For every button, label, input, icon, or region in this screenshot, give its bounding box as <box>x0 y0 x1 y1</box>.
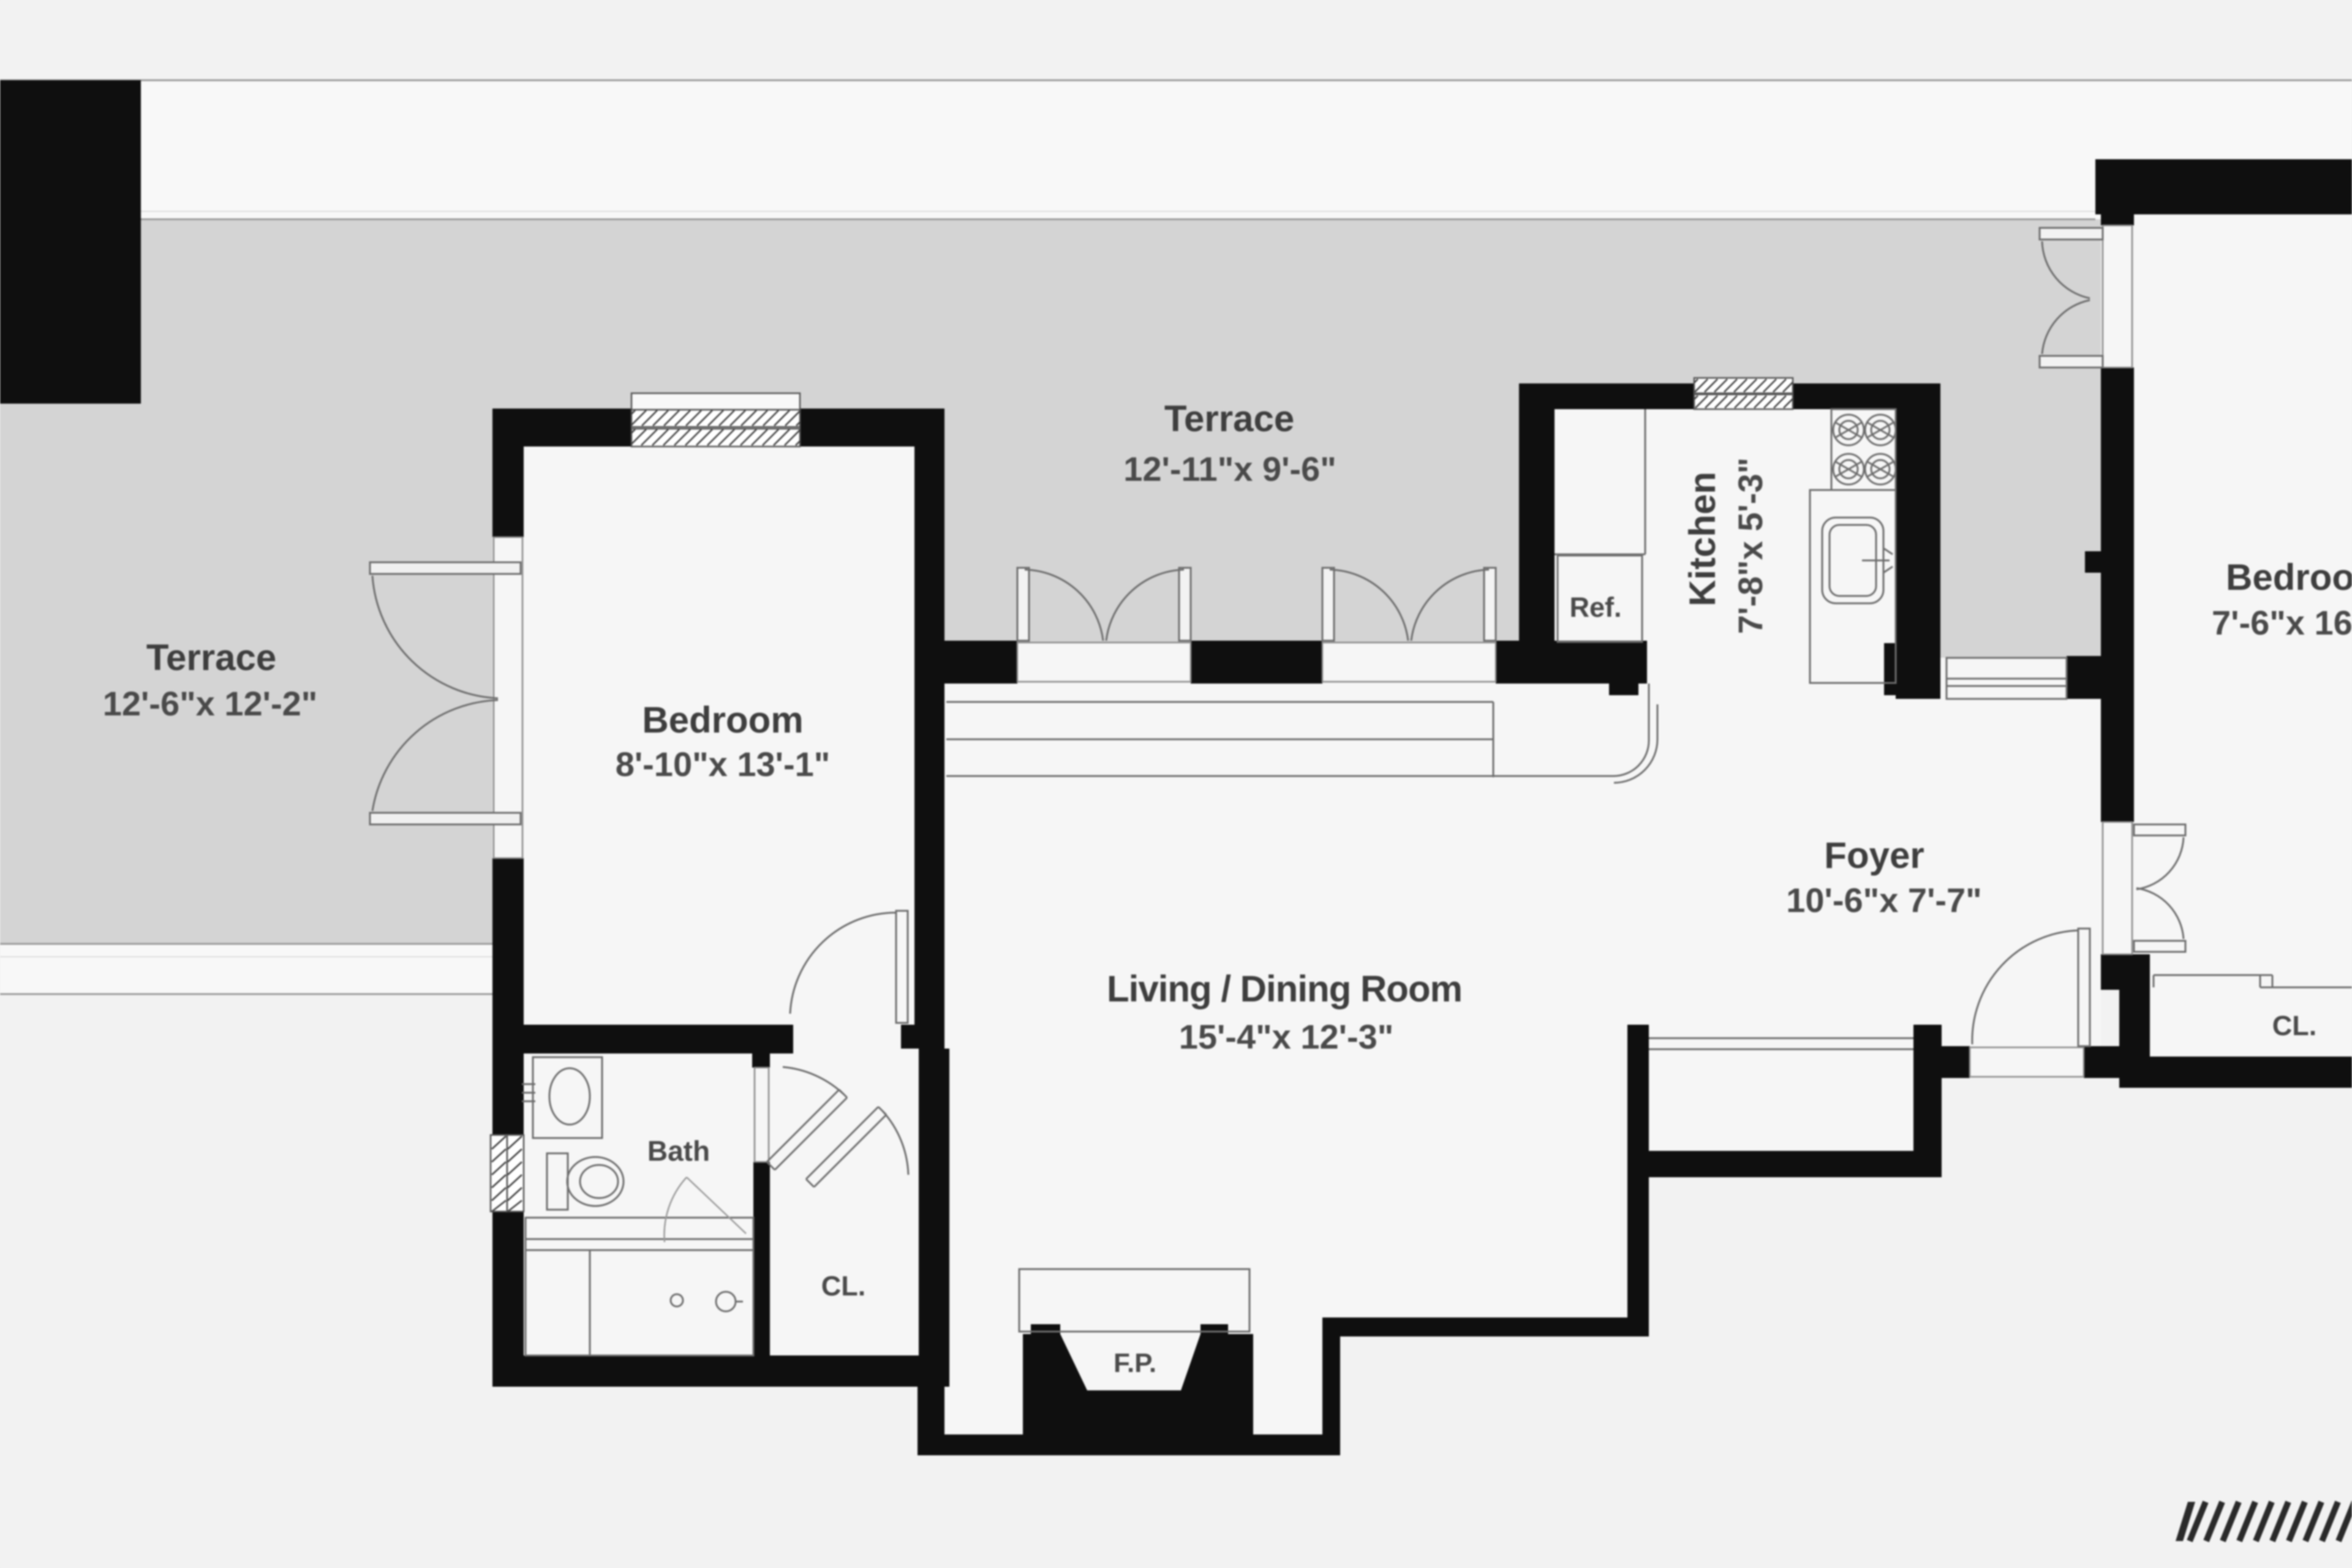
svg-text:Kitchen: Kitchen <box>1682 472 1723 606</box>
svg-text:10'-6"x 7'-7": 10'-6"x 7'-7" <box>1786 881 1981 919</box>
svg-text:12'-11"x 9'-6": 12'-11"x 9'-6" <box>1123 450 1336 488</box>
svg-text:Ref.: Ref. <box>1569 592 1621 623</box>
svg-text:CL.: CL. <box>2272 1010 2317 1041</box>
svg-text:Bedroom: Bedroom <box>2226 557 2352 598</box>
svg-text:Bath: Bath <box>647 1135 710 1167</box>
svg-text:Bedroom: Bedroom <box>642 699 803 741</box>
svg-text:7'-6"x 16'-4": 7'-6"x 16'-4" <box>2212 603 2352 642</box>
svg-text:15'-4"x 12'-3": 15'-4"x 12'-3" <box>1179 1017 1394 1056</box>
svg-text:Living / Dining Room: Living / Dining Room <box>1107 968 1462 1009</box>
svg-text:Terrace: Terrace <box>1164 398 1294 439</box>
svg-text:F.P.: F.P. <box>1114 1348 1156 1378</box>
svg-text:Terrace: Terrace <box>146 637 276 678</box>
svg-text:CL.: CL. <box>821 1270 866 1302</box>
svg-text:7'-8"x 5'-3": 7'-8"x 5'-3" <box>1731 458 1770 634</box>
svg-text:8'-10"x 13'-1": 8'-10"x 13'-1" <box>616 745 831 783</box>
svg-text:12'-6"x 12'-2": 12'-6"x 12'-2" <box>103 684 318 723</box>
svg-text:Foyer: Foyer <box>1824 835 1924 876</box>
